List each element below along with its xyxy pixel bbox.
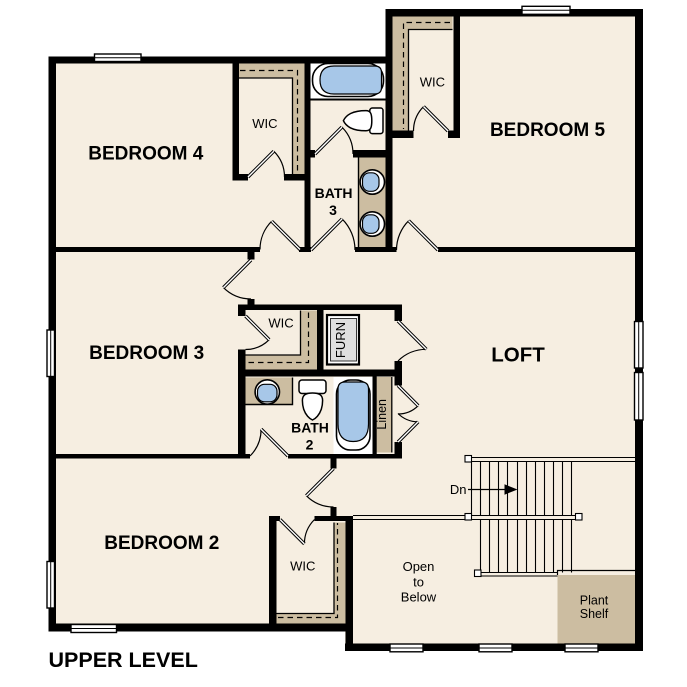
svg-text:Shelf: Shelf: [580, 607, 609, 621]
svg-text:Below: Below: [401, 590, 437, 605]
svg-text:Plant: Plant: [580, 594, 609, 608]
svg-text:BEDROOM 4: BEDROOM 4: [88, 143, 204, 164]
svg-text:BATH: BATH: [315, 185, 353, 201]
svg-text:2: 2: [306, 437, 314, 453]
svg-text:3: 3: [329, 202, 337, 218]
svg-text:to: to: [413, 575, 424, 590]
svg-text:BEDROOM 5: BEDROOM 5: [490, 120, 606, 141]
svg-text:UPPER LEVEL: UPPER LEVEL: [49, 648, 198, 672]
svg-text:BEDROOM 2: BEDROOM 2: [104, 533, 219, 554]
svg-text:WIC: WIC: [252, 116, 277, 131]
svg-text:Open: Open: [403, 559, 435, 574]
svg-text:BATH: BATH: [291, 420, 329, 436]
svg-text:WIC: WIC: [420, 75, 445, 90]
svg-text:FURN: FURN: [333, 322, 348, 358]
svg-text:Dn: Dn: [450, 482, 467, 497]
svg-text:Linen: Linen: [375, 399, 389, 430]
svg-text:LOFT: LOFT: [491, 344, 545, 367]
svg-text:WIC: WIC: [290, 559, 315, 574]
svg-text:WIC: WIC: [268, 316, 293, 331]
svg-text:BEDROOM 3: BEDROOM 3: [89, 343, 204, 364]
